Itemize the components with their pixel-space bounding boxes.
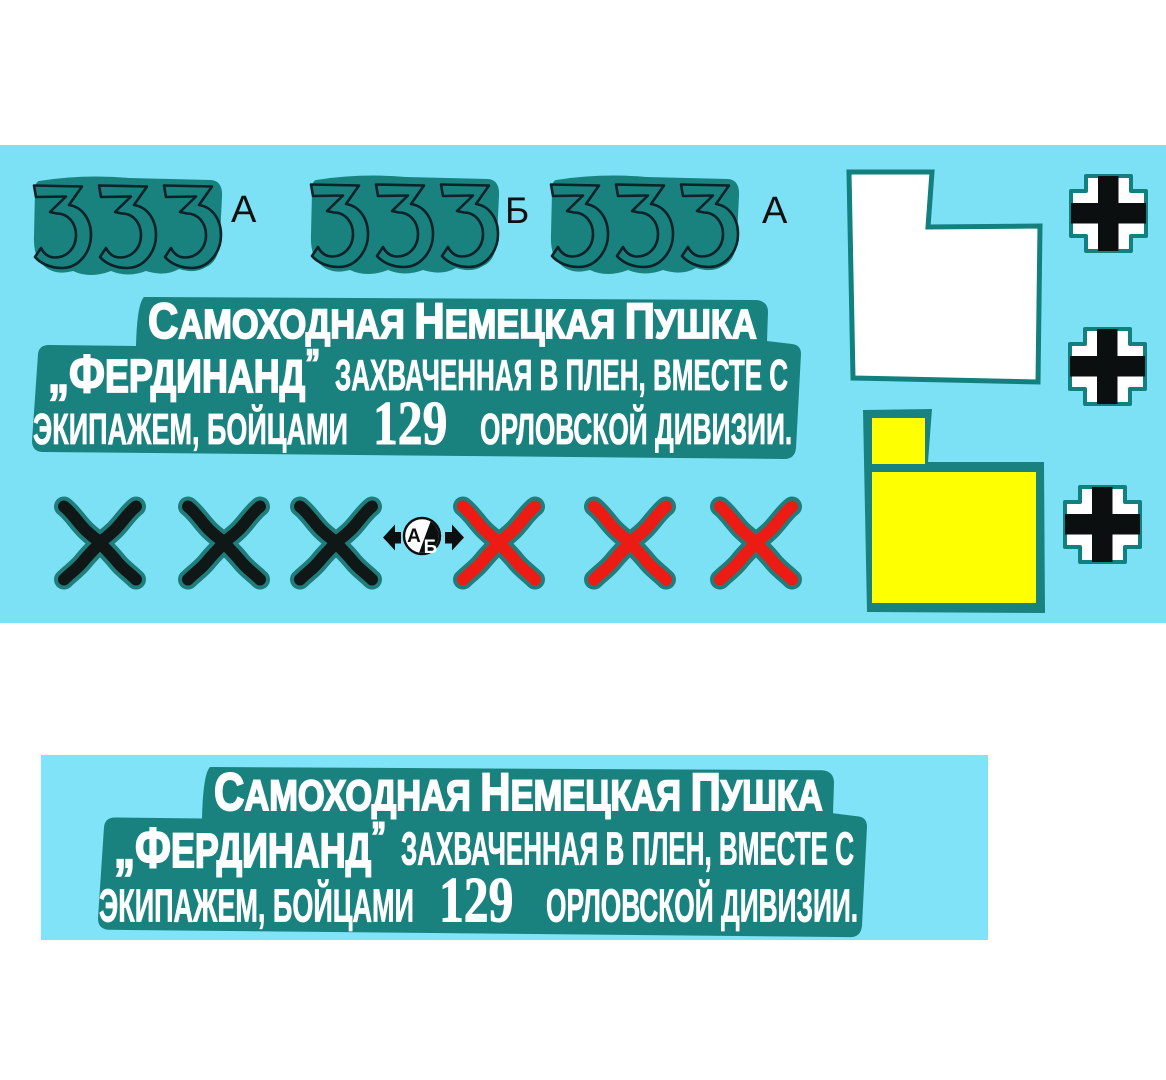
svg-text:Б: Б: [424, 537, 438, 558]
svg-text:А: А: [762, 190, 788, 232]
svg-text:Б: Б: [505, 190, 529, 231]
svg-text:А: А: [231, 189, 257, 231]
svg-text:А: А: [407, 526, 421, 547]
